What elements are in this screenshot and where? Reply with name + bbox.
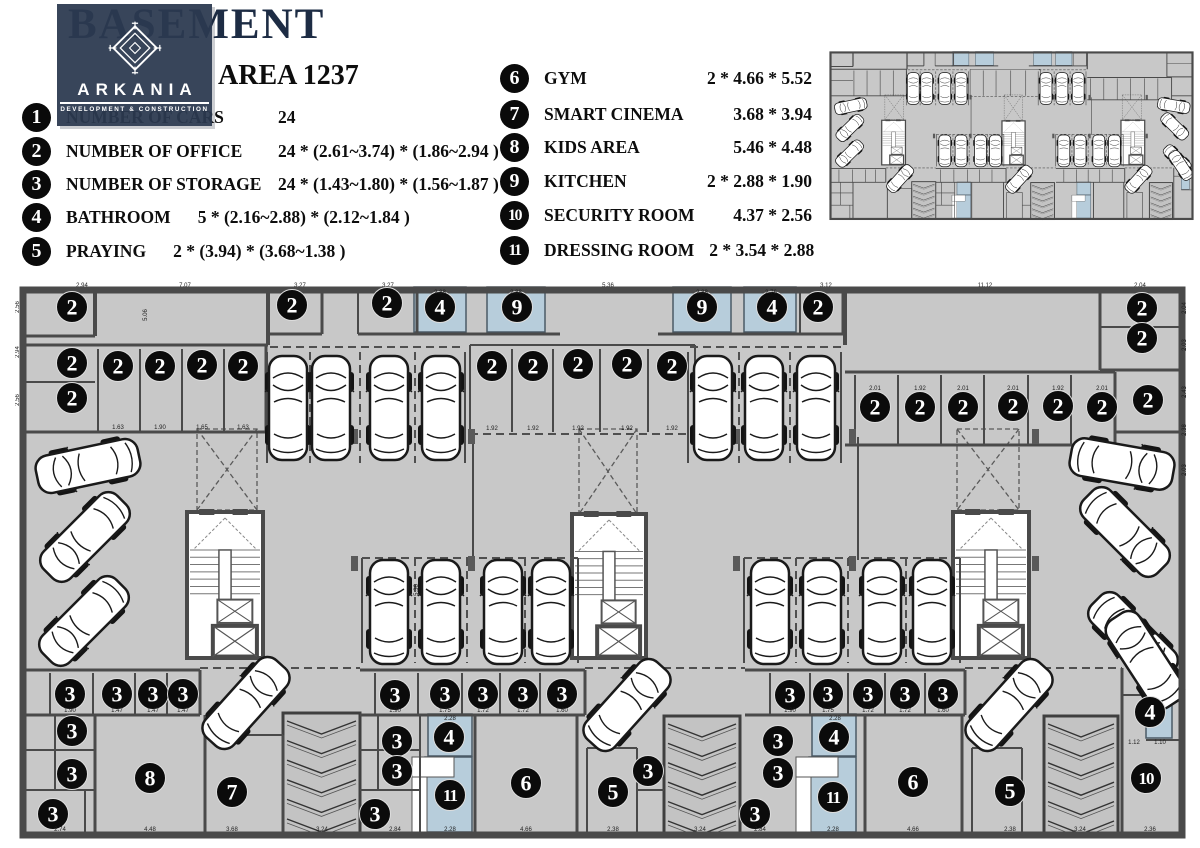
dimension-label: 2.04 <box>1134 283 1146 289</box>
svg-text:9: 9 <box>512 295 523 320</box>
dimension-label: 2.01 <box>869 386 881 392</box>
svg-text:3: 3 <box>178 682 189 707</box>
legend-number-badge: 10 <box>500 201 529 230</box>
car-icon <box>859 560 905 664</box>
svg-text:4: 4 <box>435 295 446 320</box>
room-marker: 4 <box>757 292 788 323</box>
svg-text:3: 3 <box>643 759 654 784</box>
legend-value: 24 * (2.61~3.74) * (1.86~2.94 ) <box>278 141 499 162</box>
room-marker: 3 <box>763 758 794 789</box>
dimension-label: 1.60 <box>556 708 568 714</box>
dimension-label: 3.12 <box>820 283 832 289</box>
ramp-icon <box>1149 183 1172 220</box>
room-marker: 3 <box>775 680 806 711</box>
logo-name: ARKANIA <box>71 80 197 100</box>
car-icon <box>366 560 412 664</box>
column <box>351 556 358 571</box>
legend-label: KITCHEN <box>544 171 692 192</box>
legend-value: 5 * (2.16~2.88) * (2.12~1.84 ) <box>198 207 410 228</box>
room-marker: 3 <box>763 726 794 757</box>
legend-value: 2 * 3.54 * 2.88 <box>709 240 814 261</box>
car-icon <box>1071 73 1085 105</box>
room-marker: 3 <box>890 679 921 710</box>
dimension-label: 2.28 <box>827 827 839 833</box>
svg-text:2: 2 <box>155 354 166 379</box>
dimension-label: 3.27 <box>382 283 394 289</box>
car-icon <box>480 560 526 664</box>
svg-text:7: 7 <box>227 780 238 805</box>
room-marker: 3 <box>57 716 88 747</box>
dimension-label: 3.24 <box>694 827 706 833</box>
car-icon <box>747 560 793 664</box>
svg-text:3: 3 <box>112 682 123 707</box>
car-icon <box>793 356 839 460</box>
legend-item-kitchen: 9 KITCHEN 2 * 2.88 * 1.90 <box>500 167 812 196</box>
svg-text:9: 9 <box>697 295 708 320</box>
svg-text:3: 3 <box>440 682 451 707</box>
dimension-label: 7.07 <box>179 283 191 289</box>
legend-item-dressing-room: 11 DRESSING ROOM 2 * 3.54 * 2.88 <box>500 236 812 265</box>
svg-text:3: 3 <box>67 719 78 744</box>
dimension-label: 2.28 <box>829 716 841 722</box>
svg-text:2: 2 <box>287 293 298 318</box>
legend-number-badge: 8 <box>500 133 529 162</box>
legend-label: GYM <box>544 68 692 89</box>
dimension-label: 1.47 <box>147 708 159 714</box>
svg-text:6: 6 <box>908 770 919 795</box>
dimension-label: 1.72 <box>517 708 529 714</box>
legend-label: SECURITY ROOM <box>544 205 700 226</box>
dimension-label: 3.24 <box>316 827 328 833</box>
dimension-label: 1.72 <box>862 708 874 714</box>
dimension-label: 1.63 <box>237 425 249 431</box>
svg-text:3: 3 <box>478 682 489 707</box>
dimension-label: 3.24 <box>1074 827 1086 833</box>
car-icon <box>308 356 354 460</box>
svg-text:11: 11 <box>443 786 458 805</box>
dimension-label: 2.84 <box>389 827 401 833</box>
dimension-label: 4.66 <box>907 827 919 833</box>
dimension-label: 1.90 <box>154 425 166 431</box>
legend-item-gym: 6 GYM 2 * 4.66 * 5.52 <box>500 64 812 93</box>
staircase-icon <box>953 509 1029 658</box>
room-marker: 2 <box>518 351 549 382</box>
dimension-label: 5.06 <box>143 309 149 321</box>
svg-text:3: 3 <box>392 729 403 754</box>
dimension-label: 2.88 <box>510 290 522 296</box>
dimension-label: 1.47 <box>111 708 123 714</box>
svg-text:2: 2 <box>1137 326 1148 351</box>
svg-text:2: 2 <box>1097 395 1108 420</box>
svg-text:2: 2 <box>915 395 926 420</box>
dimension-label: 1.92 <box>1052 386 1064 392</box>
legend-value: 24 * (1.43~1.80) * (1.56~1.87 ) <box>278 174 499 195</box>
dimension-label: 2.36 <box>1144 827 1156 833</box>
legend-value: 24 <box>278 107 296 128</box>
svg-text:2: 2 <box>1137 296 1148 321</box>
room-marker: 3 <box>382 726 413 757</box>
car-icon <box>938 135 952 167</box>
ramp-icon <box>664 716 740 838</box>
legend-label: KIDS AREA <box>544 137 700 158</box>
dimension-label: 2.01 <box>1007 386 1019 392</box>
legend-label: PRAYING <box>66 241 146 262</box>
car-icon <box>741 356 787 460</box>
svg-text:2: 2 <box>67 351 78 376</box>
room-marker: 2 <box>477 351 508 382</box>
car-icon <box>265 356 311 460</box>
svg-text:3: 3 <box>750 802 761 827</box>
legend-number-badge: 7 <box>500 100 529 129</box>
room-marker: 11 <box>818 782 849 813</box>
svg-text:3: 3 <box>390 683 401 708</box>
arkania-logo-icon <box>104 17 166 79</box>
staircase-icon <box>1121 119 1145 165</box>
room-marker: 3 <box>360 799 391 830</box>
room-marker: 2 <box>57 348 88 379</box>
dimension-label: 1.92 <box>666 426 678 432</box>
svg-text:3: 3 <box>67 762 78 787</box>
room-marker: 3 <box>382 756 413 787</box>
legend-value: 2 * 2.88 * 1.90 <box>707 171 812 192</box>
ramp-icon <box>912 182 936 220</box>
dimension-label: 1.72 <box>899 708 911 714</box>
car-icon <box>906 73 920 105</box>
svg-text:2: 2 <box>667 354 678 379</box>
svg-text:3: 3 <box>370 802 381 827</box>
arkania-logo: ARKANIA DEVELOPMENT & CONSTRUCTION <box>57 4 212 126</box>
legend-value: 3.68 * 3.94 <box>715 104 812 125</box>
dimension-label: 1.92 <box>621 426 633 432</box>
dimension-label: 5.36 <box>414 584 420 596</box>
car-icon <box>1055 73 1069 105</box>
staircase-icon <box>187 509 263 658</box>
svg-text:2: 2 <box>870 395 881 420</box>
dimension-label: 1.90 <box>784 708 796 714</box>
dimension-label: 2.76 <box>765 290 777 296</box>
svg-text:3: 3 <box>823 682 834 707</box>
car-icon <box>690 356 736 460</box>
svg-text:2: 2 <box>813 295 824 320</box>
staircase-icon <box>882 119 906 165</box>
room-marker: 3 <box>138 679 169 710</box>
legend-number-badge: 5 <box>22 237 51 266</box>
room-marker: 5 <box>598 777 629 808</box>
area-label: AREA 1237 <box>218 60 359 92</box>
room-marker: 2 <box>228 351 259 382</box>
staircase-icon <box>1002 120 1025 165</box>
dimension-label: 3.68 <box>226 827 238 833</box>
svg-text:2: 2 <box>113 354 124 379</box>
room-marker: 7 <box>217 777 248 808</box>
column <box>1146 134 1148 139</box>
room-marker: 4 <box>1135 697 1166 728</box>
room-marker: 3 <box>740 799 771 830</box>
dimension-label: 1.90 <box>389 708 401 714</box>
dimension-label: 2.88 <box>434 290 446 296</box>
room-marker: 10 <box>1131 763 1162 794</box>
column <box>1088 134 1090 139</box>
svg-text:3: 3 <box>48 802 59 827</box>
column <box>969 134 971 139</box>
blue-room <box>1034 52 1052 66</box>
dimension-label: 2.56 <box>15 394 21 406</box>
room-marker: 8 <box>135 763 166 794</box>
dimension-label: 2.84 <box>754 827 766 833</box>
column <box>849 429 856 444</box>
dimension-label: 1.92 <box>527 426 539 432</box>
room-marker: 2 <box>998 391 1029 422</box>
room-marker: 3 <box>55 679 86 710</box>
legend-number-badge: 4 <box>22 203 51 232</box>
room-marker: 2 <box>657 351 688 382</box>
svg-text:2: 2 <box>67 386 78 411</box>
column <box>849 556 856 571</box>
legend-value: 2 * (3.94) * (3.68~1.38 ) <box>173 241 345 262</box>
dimension-label: 1.90 <box>64 708 76 714</box>
legend-label: NUMBER OF STORAGE <box>66 174 263 195</box>
dimension-label: 1.63 <box>112 425 124 431</box>
column <box>468 556 475 571</box>
legend-number-badge: 3 <box>22 170 51 199</box>
room-marker: 4 <box>434 722 465 753</box>
dimension-label: 1.10 <box>1154 740 1166 746</box>
room-marker: 2 <box>145 351 176 382</box>
room-marker: 2 <box>372 288 403 319</box>
dimension-label: 2.38 <box>607 827 619 833</box>
blue-room <box>975 52 993 66</box>
legend-value: 4.37 * 2.56 <box>715 205 812 226</box>
dimension-label: 2.01 <box>957 386 969 392</box>
svg-text:3: 3 <box>518 682 529 707</box>
legend-item-smart-cinema: 7 SMART CINEMA 3.68 * 3.94 <box>500 100 812 129</box>
dimension-label: 3.27 <box>294 283 306 289</box>
dimension-label: 1.92 <box>486 426 498 432</box>
room-marker: 3 <box>468 679 499 710</box>
dimension-label: 4.66 <box>520 827 532 833</box>
room-marker: 2 <box>905 392 936 423</box>
svg-text:5: 5 <box>608 780 619 805</box>
room-marker: 9 <box>687 292 718 323</box>
legend-item-praying: 5 PRAYING 2 * (3.94) * (3.68~1.38 ) <box>22 237 345 266</box>
svg-text:2: 2 <box>238 354 249 379</box>
dimension-label: 2.03 <box>1182 464 1188 476</box>
room-marker: 6 <box>511 768 542 799</box>
car-icon <box>799 560 845 664</box>
room-marker: 3 <box>168 679 199 710</box>
car-icon <box>938 73 952 105</box>
legend-item-kids-area: 8 KIDS AREA 5.46 * 4.48 <box>500 133 812 162</box>
dimension-label: 1.65 <box>196 425 208 431</box>
legend-value: 2 * 4.66 * 5.52 <box>707 68 812 89</box>
svg-text:11: 11 <box>826 788 841 807</box>
dimension-label: 2.01 <box>1096 386 1108 392</box>
dimension-label: 1.92 <box>914 386 926 392</box>
column <box>1032 556 1039 571</box>
svg-text:2: 2 <box>1008 394 1019 419</box>
legend-number-badge: 9 <box>500 167 529 196</box>
car-icon <box>988 135 1002 167</box>
room-marker: 11 <box>435 780 466 811</box>
car-icon <box>909 560 955 664</box>
svg-text:2: 2 <box>67 295 78 320</box>
svg-text:3: 3 <box>773 729 784 754</box>
car-icon <box>366 356 412 460</box>
car-icon <box>1057 135 1071 167</box>
room-marker: 2 <box>277 290 308 321</box>
svg-text:2: 2 <box>487 354 498 379</box>
room-marker: 2 <box>1087 392 1118 423</box>
legend-label: SMART CINEMA <box>544 104 700 125</box>
column <box>1146 95 1148 100</box>
svg-text:3: 3 <box>65 682 76 707</box>
legend-label: BATHROOM <box>66 207 171 228</box>
svg-text:4: 4 <box>767 295 778 320</box>
legend-value: 5.46 * 4.48 <box>715 137 812 158</box>
svg-text:4: 4 <box>444 725 455 750</box>
svg-text:3: 3 <box>900 682 911 707</box>
room-marker: 2 <box>1127 323 1158 354</box>
blue-room <box>1077 182 1091 195</box>
blue-room <box>1056 52 1072 66</box>
ramp-icon <box>283 713 360 836</box>
legend-number-badge: 6 <box>500 64 529 93</box>
car-icon <box>528 560 574 664</box>
car-icon <box>954 73 968 105</box>
column <box>933 134 935 139</box>
legend-item-number-of-office: 2 NUMBER OF OFFICE 24 * (2.61~3.74) * (1… <box>22 137 499 166</box>
legend-number-badge: 1 <box>22 103 51 132</box>
car-icon <box>954 135 968 167</box>
car-icon <box>418 560 464 664</box>
dimension-label: 2.04 <box>1182 302 1188 314</box>
room-marker: 2 <box>612 349 643 380</box>
dimension-label: 2.88 <box>696 290 708 296</box>
blue-room <box>953 52 969 66</box>
column <box>1032 429 1039 444</box>
dimension-label: 2.38 <box>1004 827 1016 833</box>
legend-item-security-room: 10 SECURITY ROOM 4.37 * 2.56 <box>500 201 812 230</box>
room-marker: 3 <box>102 679 133 710</box>
svg-text:3: 3 <box>785 683 796 708</box>
svg-text:3: 3 <box>773 761 784 786</box>
svg-text:2: 2 <box>382 291 393 316</box>
dimension-label: 1.75 <box>822 708 834 714</box>
dimension-label: 1.47 <box>177 708 189 714</box>
dimension-label: 2.94 <box>15 346 21 358</box>
room-marker: 3 <box>633 756 664 787</box>
column <box>1088 95 1090 100</box>
room-marker: 2 <box>57 383 88 414</box>
mini-plan-thumbnail <box>828 50 1195 222</box>
dimension-label: 1.92 <box>572 426 584 432</box>
legend-label: NUMBER OF OFFICE <box>66 141 263 162</box>
room-marker: 2 <box>860 392 891 423</box>
room-marker: 3 <box>57 759 88 790</box>
svg-text:8: 8 <box>145 766 156 791</box>
dimension-label: 2.56 <box>15 301 21 313</box>
column <box>468 429 475 444</box>
room-marker: 2 <box>948 392 979 423</box>
dimension-label: 1.75 <box>439 708 451 714</box>
dimension-label: 2.38 <box>1182 424 1188 436</box>
svg-text:3: 3 <box>863 682 874 707</box>
svg-text:3: 3 <box>392 759 403 784</box>
room-marker: 2 <box>57 292 88 323</box>
svg-text:3: 3 <box>938 682 949 707</box>
floor-plan: 2222222222222222222222223333333333333333… <box>15 282 1190 845</box>
dimension-label: 4.48 <box>144 827 156 833</box>
car-icon <box>418 356 464 460</box>
car-icon <box>1107 135 1121 167</box>
dimension-label: 5.36 <box>602 283 614 289</box>
svg-text:4: 4 <box>1145 700 1156 725</box>
svg-text:2: 2 <box>958 395 969 420</box>
svg-text:2: 2 <box>1143 388 1154 413</box>
room-marker: 3 <box>380 680 411 711</box>
room-marker: 2 <box>1043 391 1074 422</box>
room-marker: 3 <box>508 679 539 710</box>
room-marker: 3 <box>547 679 578 710</box>
dimension-label: 2.28 <box>444 827 456 833</box>
room-marker: 2 <box>803 292 834 323</box>
svg-text:5: 5 <box>1005 779 1016 804</box>
legend-item-bathroom: 4 BATHROOM 5 * (2.16~2.88) * (2.12~1.84 … <box>22 203 410 232</box>
column <box>969 95 971 100</box>
dimension-label: 2.28 <box>444 716 456 722</box>
dimension-label: 2.03 <box>1182 339 1188 351</box>
room-marker: 3 <box>928 679 959 710</box>
legend-number-badge: 2 <box>22 137 51 166</box>
svg-text:2: 2 <box>622 352 633 377</box>
dimension-label: 1.72 <box>477 708 489 714</box>
svg-text:2: 2 <box>528 354 539 379</box>
room-marker: 4 <box>425 292 456 323</box>
dimension-label: 1.12 <box>1128 740 1140 746</box>
dimension-label: 11.12 <box>978 283 993 289</box>
svg-text:6: 6 <box>521 771 532 796</box>
car-icon <box>1092 135 1106 167</box>
ramp-icon <box>1031 183 1055 220</box>
legend-number-badge: 11 <box>500 236 529 265</box>
room-marker: 3 <box>813 679 844 710</box>
room-marker: 5 <box>995 776 1026 807</box>
room-marker: 3 <box>430 679 461 710</box>
dimension-label: 2.94 <box>76 283 88 289</box>
column <box>1052 134 1054 139</box>
car-icon <box>920 73 934 105</box>
room-marker: 3 <box>38 799 69 830</box>
room-marker: 2 <box>1127 293 1158 324</box>
svg-text:3: 3 <box>557 682 568 707</box>
column <box>733 556 740 571</box>
legend-item-number-of-storage: 3 NUMBER OF STORAGE 24 * (1.43~1.80) * (… <box>22 170 499 199</box>
dimension-label: 1.60 <box>937 708 949 714</box>
staircase-icon <box>572 511 646 658</box>
dimension-label: 2.74 <box>54 827 66 833</box>
svg-text:2: 2 <box>573 352 584 377</box>
car-icon <box>1073 135 1087 167</box>
svg-text:2: 2 <box>1053 394 1064 419</box>
car-icon <box>1039 73 1053 105</box>
room-marker: 2 <box>563 349 594 380</box>
room-marker: 9 <box>502 292 533 323</box>
svg-text:10: 10 <box>1139 769 1155 788</box>
svg-text:3: 3 <box>148 682 159 707</box>
blue-room <box>957 182 971 195</box>
svg-text:2: 2 <box>197 353 208 378</box>
car-icon <box>973 135 987 167</box>
